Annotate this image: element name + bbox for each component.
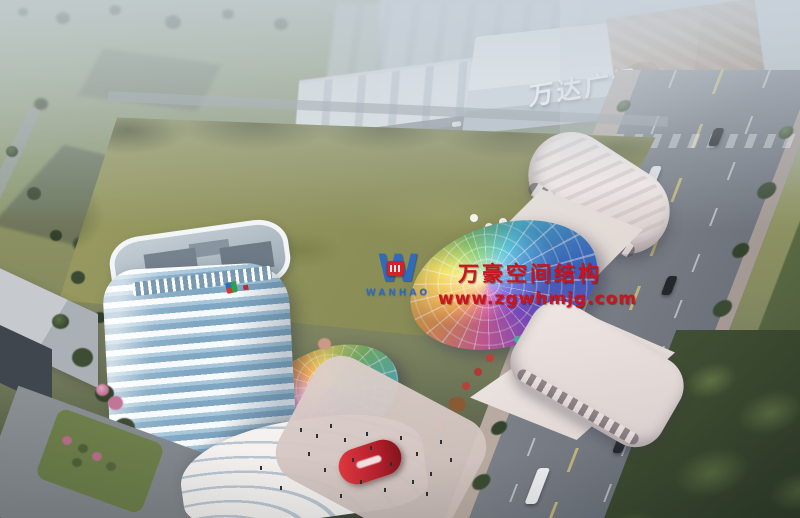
distant-trees xyxy=(18,8,28,16)
watermark-brand: WANHAO xyxy=(366,288,428,298)
aerial-rendering-image: 万达广场 xyxy=(0,0,800,518)
watermark-url: www.zgwhmjg.com xyxy=(438,289,637,309)
white-umbrellas xyxy=(470,214,478,222)
bus xyxy=(524,468,550,504)
people-on-plaza xyxy=(300,428,302,432)
side-street-trees xyxy=(52,314,69,329)
watermark: W WANHAO 万豪空间结构 www.zgwhmjg.com xyxy=(366,252,637,309)
watermark-company: 万豪空间结构 xyxy=(458,258,637,288)
watermark-red-badge-icon xyxy=(387,261,404,276)
lawn-edge-trees xyxy=(6,146,18,157)
flowering-shrubs xyxy=(62,436,72,445)
car xyxy=(661,276,678,295)
watermark-text: 万豪空间结构 www.zgwhmjg.com xyxy=(438,252,637,309)
red-umbrellas xyxy=(462,382,470,390)
tower-logo-icon xyxy=(225,281,238,294)
watermark-logo: W WANHAO xyxy=(366,252,428,304)
pink-blossom-trees xyxy=(96,384,109,396)
